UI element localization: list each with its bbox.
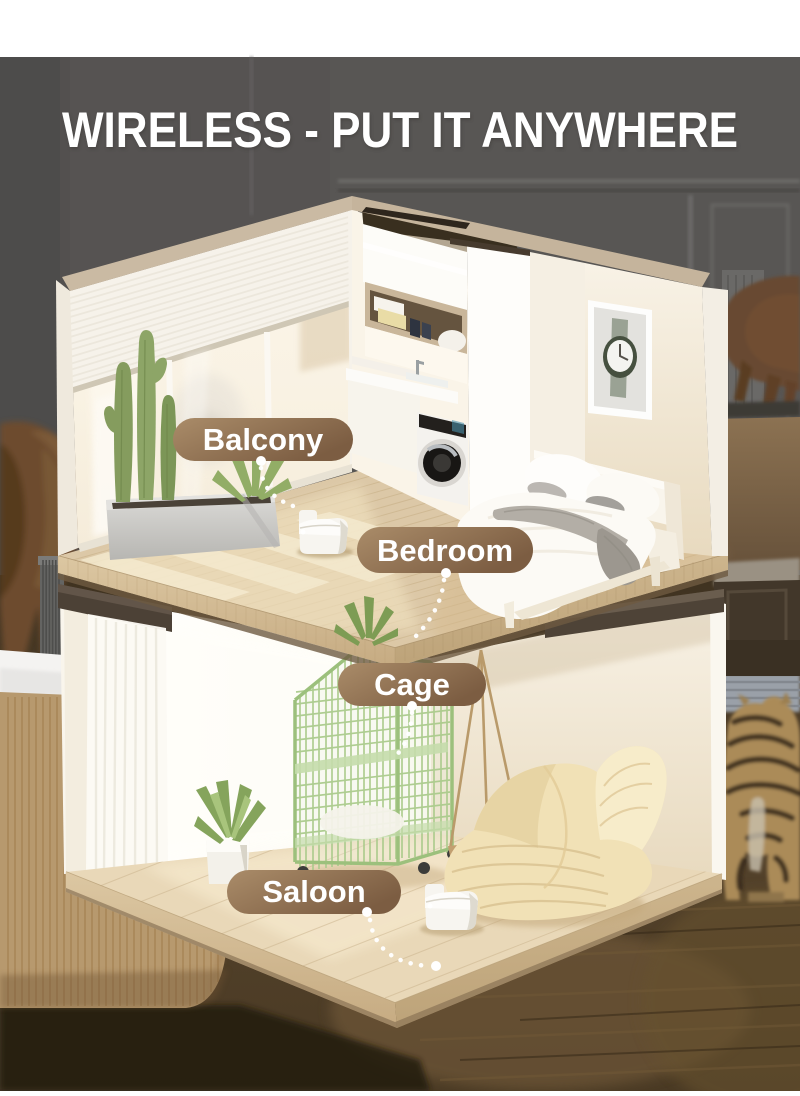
svg-text:Bedroom: Bedroom [377,533,513,568]
svg-text:Saloon: Saloon [262,874,365,909]
svg-text:Balcony: Balcony [203,422,324,457]
svg-text:WIRELESS - PUT IT ANYWHERE: WIRELESS - PUT IT ANYWHERE [62,102,738,158]
svg-text:Cage: Cage [374,667,450,702]
